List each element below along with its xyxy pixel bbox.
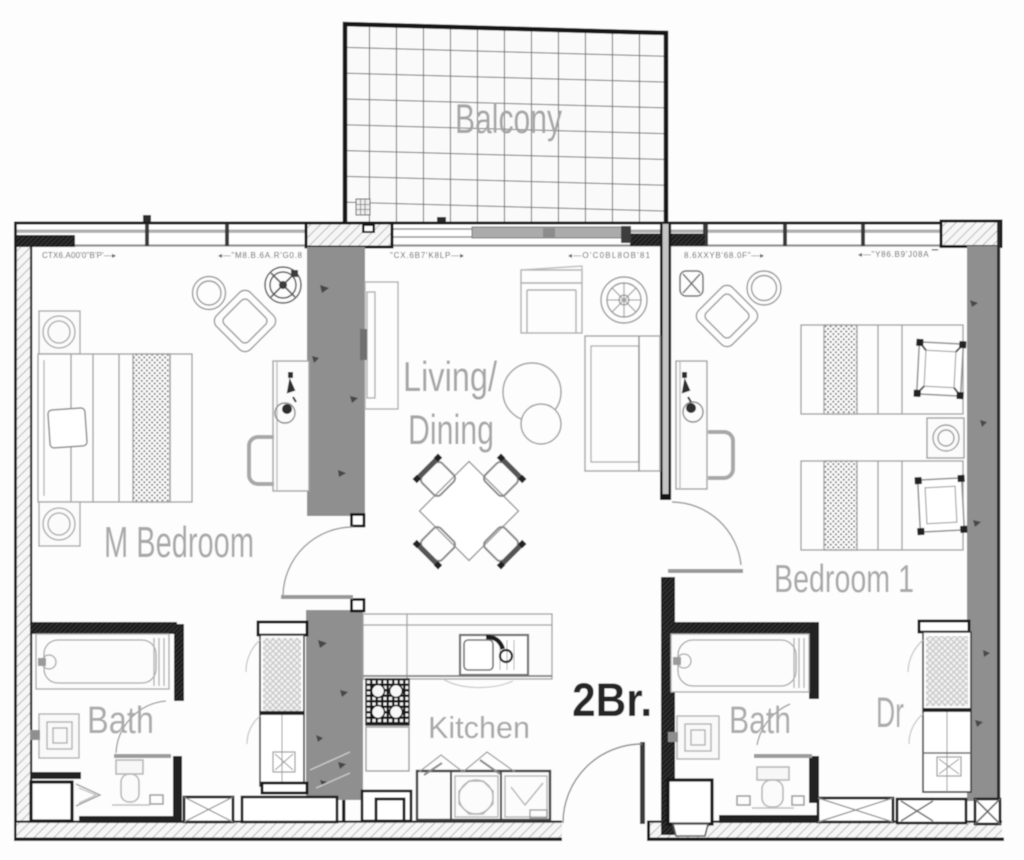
svg-text:Bath: Bath: [87, 700, 154, 742]
svg-text:CTX6.A00'0"B'P'—▸: CTX6.A00'0"B'P'—▸: [42, 251, 116, 260]
svg-text:8.6XXYB'68.0F"—▸: 8.6XXYB'68.0F"—▸: [684, 251, 764, 260]
svg-text:Bath: Bath: [729, 700, 791, 742]
svg-text:Dr: Dr: [876, 689, 904, 737]
svg-text:◂—"M8.B.6A.R'G0.8: ◂—"M8.B.6A.R'G0.8: [218, 251, 303, 260]
svg-text:Dining: Dining: [408, 406, 494, 453]
svg-text:2Br.: 2Br.: [572, 675, 652, 727]
svg-text:Bedroom 1: Bedroom 1: [774, 558, 914, 601]
svg-text:Balcony: Balcony: [455, 95, 562, 142]
svg-text:Kitchen: Kitchen: [428, 710, 530, 745]
svg-text:Living/: Living/: [403, 353, 497, 400]
svg-text:"CX.6B7'K8LP—▸: "CX.6B7'K8LP—▸: [390, 251, 464, 260]
svg-text:M Bedroom: M Bedroom: [104, 518, 254, 567]
svg-text:◂—O'C0BL8OB'81: ◂—O'C0BL8OB'81: [568, 251, 651, 260]
svg-text:◂—"Y86.B9'J08A ▔: ◂—"Y86.B9'J08A ▔: [858, 249, 939, 259]
